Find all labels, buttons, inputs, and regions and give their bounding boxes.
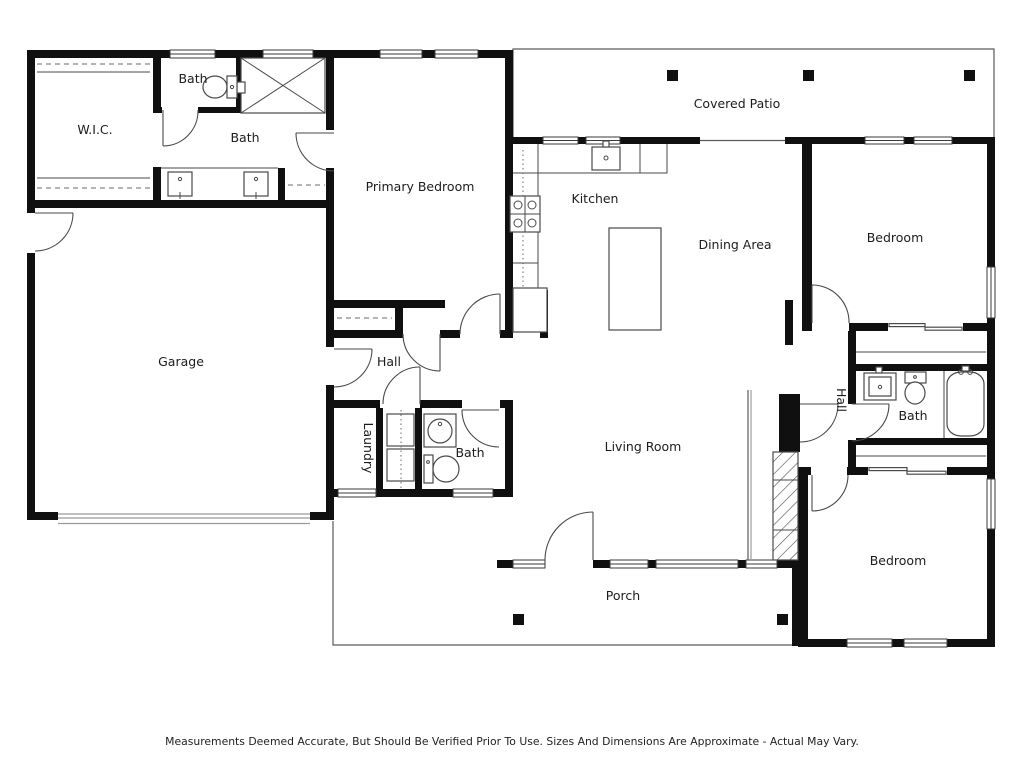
washer [387,414,414,446]
window [513,560,545,568]
door-swing [163,110,198,146]
door-swing [403,334,440,371]
label-covered-patio: Covered Patio [694,96,781,111]
kitchen-island [609,228,661,330]
wall-segment [987,137,995,647]
wall-segment [278,168,285,208]
wall-segment [27,200,334,208]
door-swing [545,512,593,560]
label-primary-bedroom: Primary Bedroom [366,179,475,194]
patio-post [667,70,678,81]
door-opening [380,400,420,408]
toilet [203,76,237,98]
sliding-closet-door [888,323,963,331]
window [338,489,376,497]
label-bedroom-se: Bedroom [870,553,927,568]
label-bath-top: Bath [178,71,207,86]
label-kitchen: Kitchen [572,191,619,206]
window [543,137,578,144]
label-hall-east: Hall [834,388,849,412]
disclaimer-text: Measurements Deemed Accurate, But Should… [165,735,859,748]
door-opening [812,323,849,331]
door-swing [800,404,838,442]
wall-segment [153,167,161,208]
label-wic: W.I.C. [77,122,112,137]
patio-post [803,70,814,81]
porch-outline [333,521,797,645]
wall-segment [415,408,422,497]
door-opening [462,400,500,408]
porch-post [513,614,524,625]
door-opening [326,130,334,168]
garage-door [58,512,310,524]
window [987,267,995,318]
door-opening [326,347,334,385]
label-garage: Garage [158,354,204,369]
toilet [905,372,926,404]
living-room-edge-line [748,390,751,560]
patio-post [964,70,975,81]
door-opening [403,330,440,338]
label-bath-center: Bath [455,445,484,460]
bathroom-sink [864,367,896,400]
covered-patio-outline [513,49,994,137]
wall-segment [798,639,995,647]
kitchen-sink [592,141,620,170]
wall-segment [779,394,800,452]
door-opening [162,107,198,113]
sliding-closet-door [868,467,947,475]
label-bath-primary: Bath [230,130,259,145]
wall-segment [505,408,513,497]
door-swing [383,367,420,404]
refrigerator [513,288,547,332]
door-swing [334,349,372,387]
wall-segment [792,568,800,646]
walls [27,50,995,647]
wall-segment [785,300,793,345]
shower [237,58,325,113]
window [987,479,995,529]
label-dining-area: Dining Area [698,237,771,252]
wall-segment [326,58,334,520]
wall-segment [848,438,995,445]
fireplace [773,452,798,560]
door-opening [460,330,500,338]
window [453,489,493,497]
floor-plan-svg: W.I.C. Bath Bath Primary Bedroom Covered… [0,0,1024,768]
window [263,50,313,58]
window [847,639,892,647]
door-swing [462,410,499,447]
label-bedroom-ne: Bedroom [867,230,924,245]
bathroom-sink [424,414,456,447]
wall-segment [376,408,383,497]
double-vanity [161,168,278,199]
door-opening [545,560,593,568]
window [746,560,777,568]
floor-plan-image: W.I.C. Bath Bath Primary Bedroom Covered… [0,0,1024,768]
window [435,50,478,58]
window [170,50,215,58]
label-laundry: Laundry [361,423,376,475]
door-swing [852,404,889,441]
door-swing [812,475,848,511]
door-swing [812,285,849,323]
window [865,137,904,144]
toilet [424,455,459,483]
shower-valve [237,82,245,93]
door-swing [35,213,73,251]
wall-segment [848,364,995,371]
door-opening [811,467,847,475]
wall-segment [27,50,35,520]
wall-segment [802,137,812,331]
wall-segment [153,58,161,110]
wall-segment [334,300,445,308]
window [914,137,952,144]
door-opening [27,213,35,253]
stove [510,196,540,232]
window [656,560,738,568]
window [904,639,947,647]
label-living-room: Living Room [605,439,682,454]
label-porch: Porch [606,588,640,603]
window [610,560,648,568]
bathtub [944,366,984,438]
door-swing [460,294,500,334]
label-hall-center: Hall [377,354,401,369]
window [380,50,422,58]
porch-post [777,614,788,625]
label-bath-east: Bath [898,408,927,423]
